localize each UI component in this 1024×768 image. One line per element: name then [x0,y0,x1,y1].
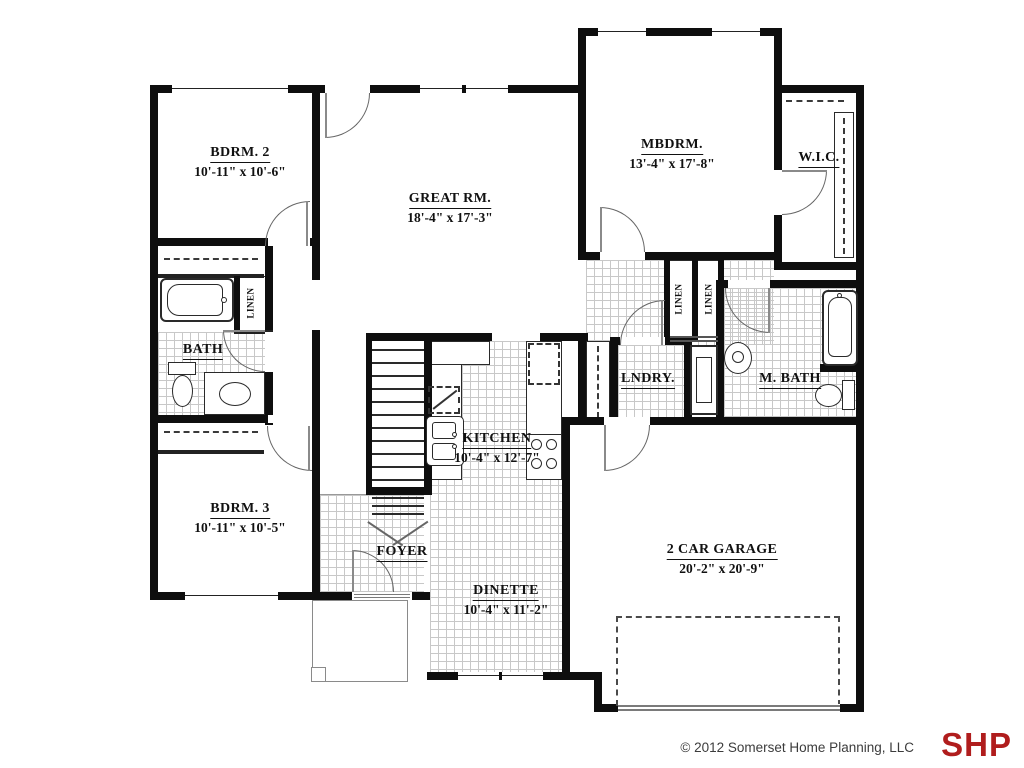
closet-rod [164,431,258,433]
room-label-lndry: LNDRY. [621,369,675,389]
room-name: GREAT RM. [409,191,491,209]
room-label-garage: 2 CAR GARAGE 20'-2" x 20'-9" [667,540,778,577]
door-opening [728,280,770,288]
room-label-great-rm: GREAT RM. 18'-4" x 17'-3" [407,189,492,226]
door-leaf [604,425,606,471]
room-name: MBDRM. [641,137,703,155]
vanity-sink [219,382,251,406]
linen-label: LINEN [704,283,714,314]
room-dims: 10'-4" x 12'-7" [454,450,539,466]
window-mullion [499,672,502,680]
door-arc [604,425,650,471]
room-name: FOYER [377,544,428,562]
window [598,28,646,36]
wall [578,28,586,260]
window [712,28,760,36]
pantry-shelf-line [597,346,599,418]
shp-logo: SHP [941,726,1012,764]
door-leaf [782,170,827,172]
door-leaf [223,330,265,332]
room-label-foyer: FOYER [377,542,428,562]
room-label-bdrm3: BDRM. 3 10'-11" x 10'-5" [194,499,286,536]
room-label-dinette: DINETTE 10'-4" x 11'-2" [464,581,549,618]
garage-door [618,709,840,711]
bathtub-drain [837,293,842,298]
room-label-mbdrm: MBDRM. 13'-4" x 17'-8" [629,135,714,172]
door-leaf [600,207,602,252]
closet-door-sill [670,340,718,342]
door-sill [354,594,410,595]
wall [782,85,862,93]
door-opening [604,417,650,425]
room-dims: 10'-11" x 10'-6" [194,164,286,180]
room-dims: 20'-2" x 20'-9" [667,561,778,577]
wall [856,85,864,712]
wall [424,333,432,495]
toilet-bowl [172,375,193,407]
linen-label: LINEN [674,283,684,314]
room-dims: 10'-4" x 11'-2" [464,602,549,618]
toilet-tank [842,380,855,410]
room-name: DINETTE [473,583,539,601]
wall [562,672,602,680]
wall [366,487,432,495]
room-name: W.I.C. [798,150,839,168]
room-label-bath: BATH [183,340,223,360]
door-leaf [661,300,663,345]
wall [718,260,724,342]
wall [692,260,698,342]
door-arc [265,201,310,246]
burner [546,439,557,450]
closet-door-sill [670,336,718,338]
door-leaf [325,93,327,138]
bathtub-drain [221,297,227,303]
closet-rod [164,258,258,260]
room-name: BDRM. 3 [210,501,270,519]
garage-ceiling-line [616,616,840,706]
door-arc [600,207,645,252]
door-leaf [306,201,308,246]
wall [774,28,782,270]
door-opening [268,415,312,423]
room-label-mbath: M. BATH [759,369,821,389]
sink-drain [732,351,744,363]
wall [234,276,240,334]
room-dims: 13'-4" x 17'-8" [629,156,714,172]
porch-post [311,667,326,682]
floor-transition [320,494,366,495]
room-dims: 18'-4" x 17'-3" [407,210,492,226]
wall [540,333,588,341]
closet-wall [158,450,264,454]
wall [312,85,320,246]
door-leaf [768,288,770,333]
front-door-leaf [352,550,354,592]
window-mullion [462,85,466,93]
door-sill [354,597,410,598]
garage-door [618,705,840,707]
door-opening [325,85,370,93]
door-leaf [308,426,310,471]
room-label-wic: W.I.C. [798,148,839,168]
toilet-tank [168,362,196,375]
wall [610,337,618,425]
linen-label: LINEN [246,287,256,318]
stairs-lower [372,497,424,518]
wall [578,341,586,425]
bathtub-basin [167,284,223,316]
room-dims: 10'-11" x 10'-5" [194,520,286,536]
floor-plan: BDRM. 2 10'-11" x 10'-6" GREAT RM. 18'-4… [0,0,1024,768]
door-opening [774,170,782,215]
kitchen-counter [428,341,490,365]
wall [774,262,862,270]
door-arc [267,426,312,471]
window [185,592,278,600]
room-name: BATH [183,342,223,360]
cased-opening [312,280,320,330]
porch [312,600,408,682]
wall [562,417,570,680]
burner [546,458,557,469]
room-name: 2 CAR GARAGE [667,542,778,560]
room-label-kitchen: KITCHEN 10'-4" x 12'-7" [454,429,539,466]
wall [366,333,372,495]
window [172,85,288,93]
room-label-bdrm2: BDRM. 2 10'-11" x 10'-6" [194,143,286,180]
room-name: M. BATH [759,371,821,389]
door-arc [325,93,370,138]
door-opening [600,252,645,260]
stairs [372,336,424,486]
room-name: KITCHEN [463,431,532,449]
room-name: BDRM. 2 [210,145,270,163]
copyright-text: © 2012 Somerset Home Planning, LLC [680,740,914,755]
room-name: LNDRY. [621,371,675,389]
bathtub-basin [828,297,852,357]
wic-shelf-line [843,118,845,254]
wic-shelf [786,100,844,102]
wall [150,85,158,600]
furnace-inner [696,357,712,403]
refrigerator [528,343,560,385]
door-arc [782,170,827,215]
door-opening [265,332,273,372]
